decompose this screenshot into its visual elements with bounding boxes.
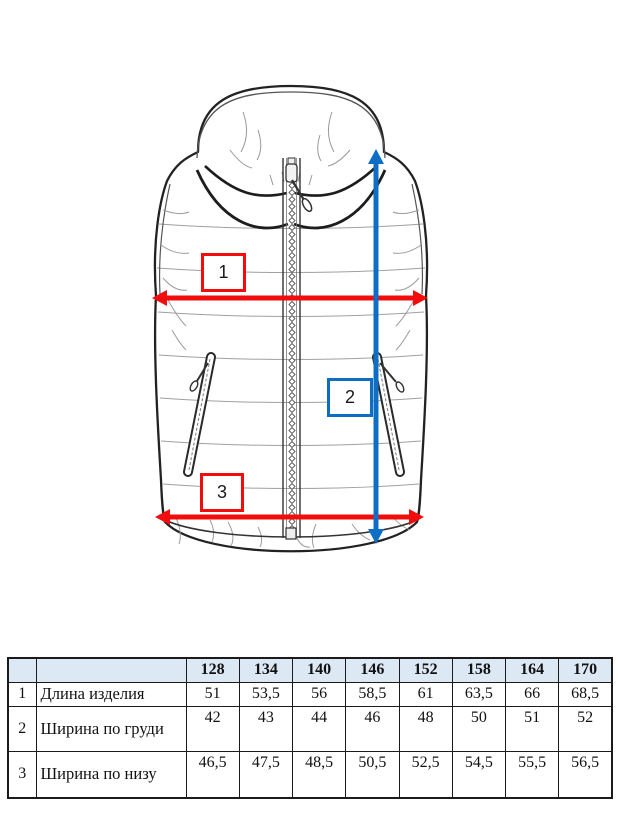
value-cell: 51 — [186, 683, 239, 707]
callout-2-number: 2 — [345, 387, 355, 408]
value-cell: 58,5 — [346, 683, 399, 707]
row-number-cell: 3 — [8, 752, 36, 799]
value-cell: 63,5 — [452, 683, 505, 707]
value-cell: 61 — [399, 683, 452, 707]
table-row: 1 Длина изделия 51 53,5 56 58,5 61 63,5 … — [8, 683, 612, 707]
value-cell: 46 — [346, 707, 399, 752]
corner-cell — [8, 658, 36, 683]
value-cell: 50,5 — [346, 752, 399, 799]
vest-technical-drawing — [0, 0, 618, 650]
value-cell: 56,5 — [559, 752, 612, 799]
callout-2-box: 2 — [327, 378, 373, 417]
value-cell: 44 — [293, 707, 346, 752]
row-number-cell: 1 — [8, 683, 36, 707]
size-table: 128 134 140 146 152 158 164 170 1 Длина … — [7, 657, 613, 799]
callout-3-box: 3 — [200, 473, 244, 512]
size-header-cell: 164 — [506, 658, 559, 683]
value-cell: 48 — [399, 707, 452, 752]
value-cell: 51 — [506, 707, 559, 752]
value-cell: 66 — [506, 683, 559, 707]
value-cell: 68,5 — [559, 683, 612, 707]
row-label-cell: Ширина по низу — [36, 752, 186, 799]
value-cell: 47,5 — [239, 752, 292, 799]
row-label-cell: Длина изделия — [36, 683, 186, 707]
callout-1-number: 1 — [218, 262, 228, 283]
size-header-cell: 134 — [239, 658, 292, 683]
value-cell: 53,5 — [239, 683, 292, 707]
size-header-cell: 152 — [399, 658, 452, 683]
callout-1-box: 1 — [201, 253, 246, 292]
value-cell: 54,5 — [452, 752, 505, 799]
table-row: 3 Ширина по низу 46,5 47,5 48,5 50,5 52,… — [8, 752, 612, 799]
size-chart-page: 1 2 3 128 134 140 146 152 158 164 170 1 … — [0, 0, 618, 824]
value-cell: 52 — [559, 707, 612, 752]
row-number-cell: 2 — [8, 707, 36, 752]
corner-cell — [36, 658, 186, 683]
table-row: 2 Ширина по груди 42 43 44 46 48 50 51 5… — [8, 707, 612, 752]
value-cell: 52,5 — [399, 752, 452, 799]
value-cell: 46,5 — [186, 752, 239, 799]
size-header-cell: 170 — [559, 658, 612, 683]
value-cell: 56 — [293, 683, 346, 707]
size-header-cell: 140 — [293, 658, 346, 683]
value-cell: 42 — [186, 707, 239, 752]
value-cell: 43 — [239, 707, 292, 752]
size-table-header-row: 128 134 140 146 152 158 164 170 — [8, 658, 612, 683]
value-cell: 50 — [452, 707, 505, 752]
callout-3-number: 3 — [217, 482, 227, 503]
size-header-cell: 146 — [346, 658, 399, 683]
size-header-cell: 128 — [186, 658, 239, 683]
value-cell: 55,5 — [506, 752, 559, 799]
value-cell: 48,5 — [293, 752, 346, 799]
row-label-cell: Ширина по груди — [36, 707, 186, 752]
vest-measurement-diagram: 1 2 3 — [0, 0, 618, 650]
size-header-cell: 158 — [452, 658, 505, 683]
